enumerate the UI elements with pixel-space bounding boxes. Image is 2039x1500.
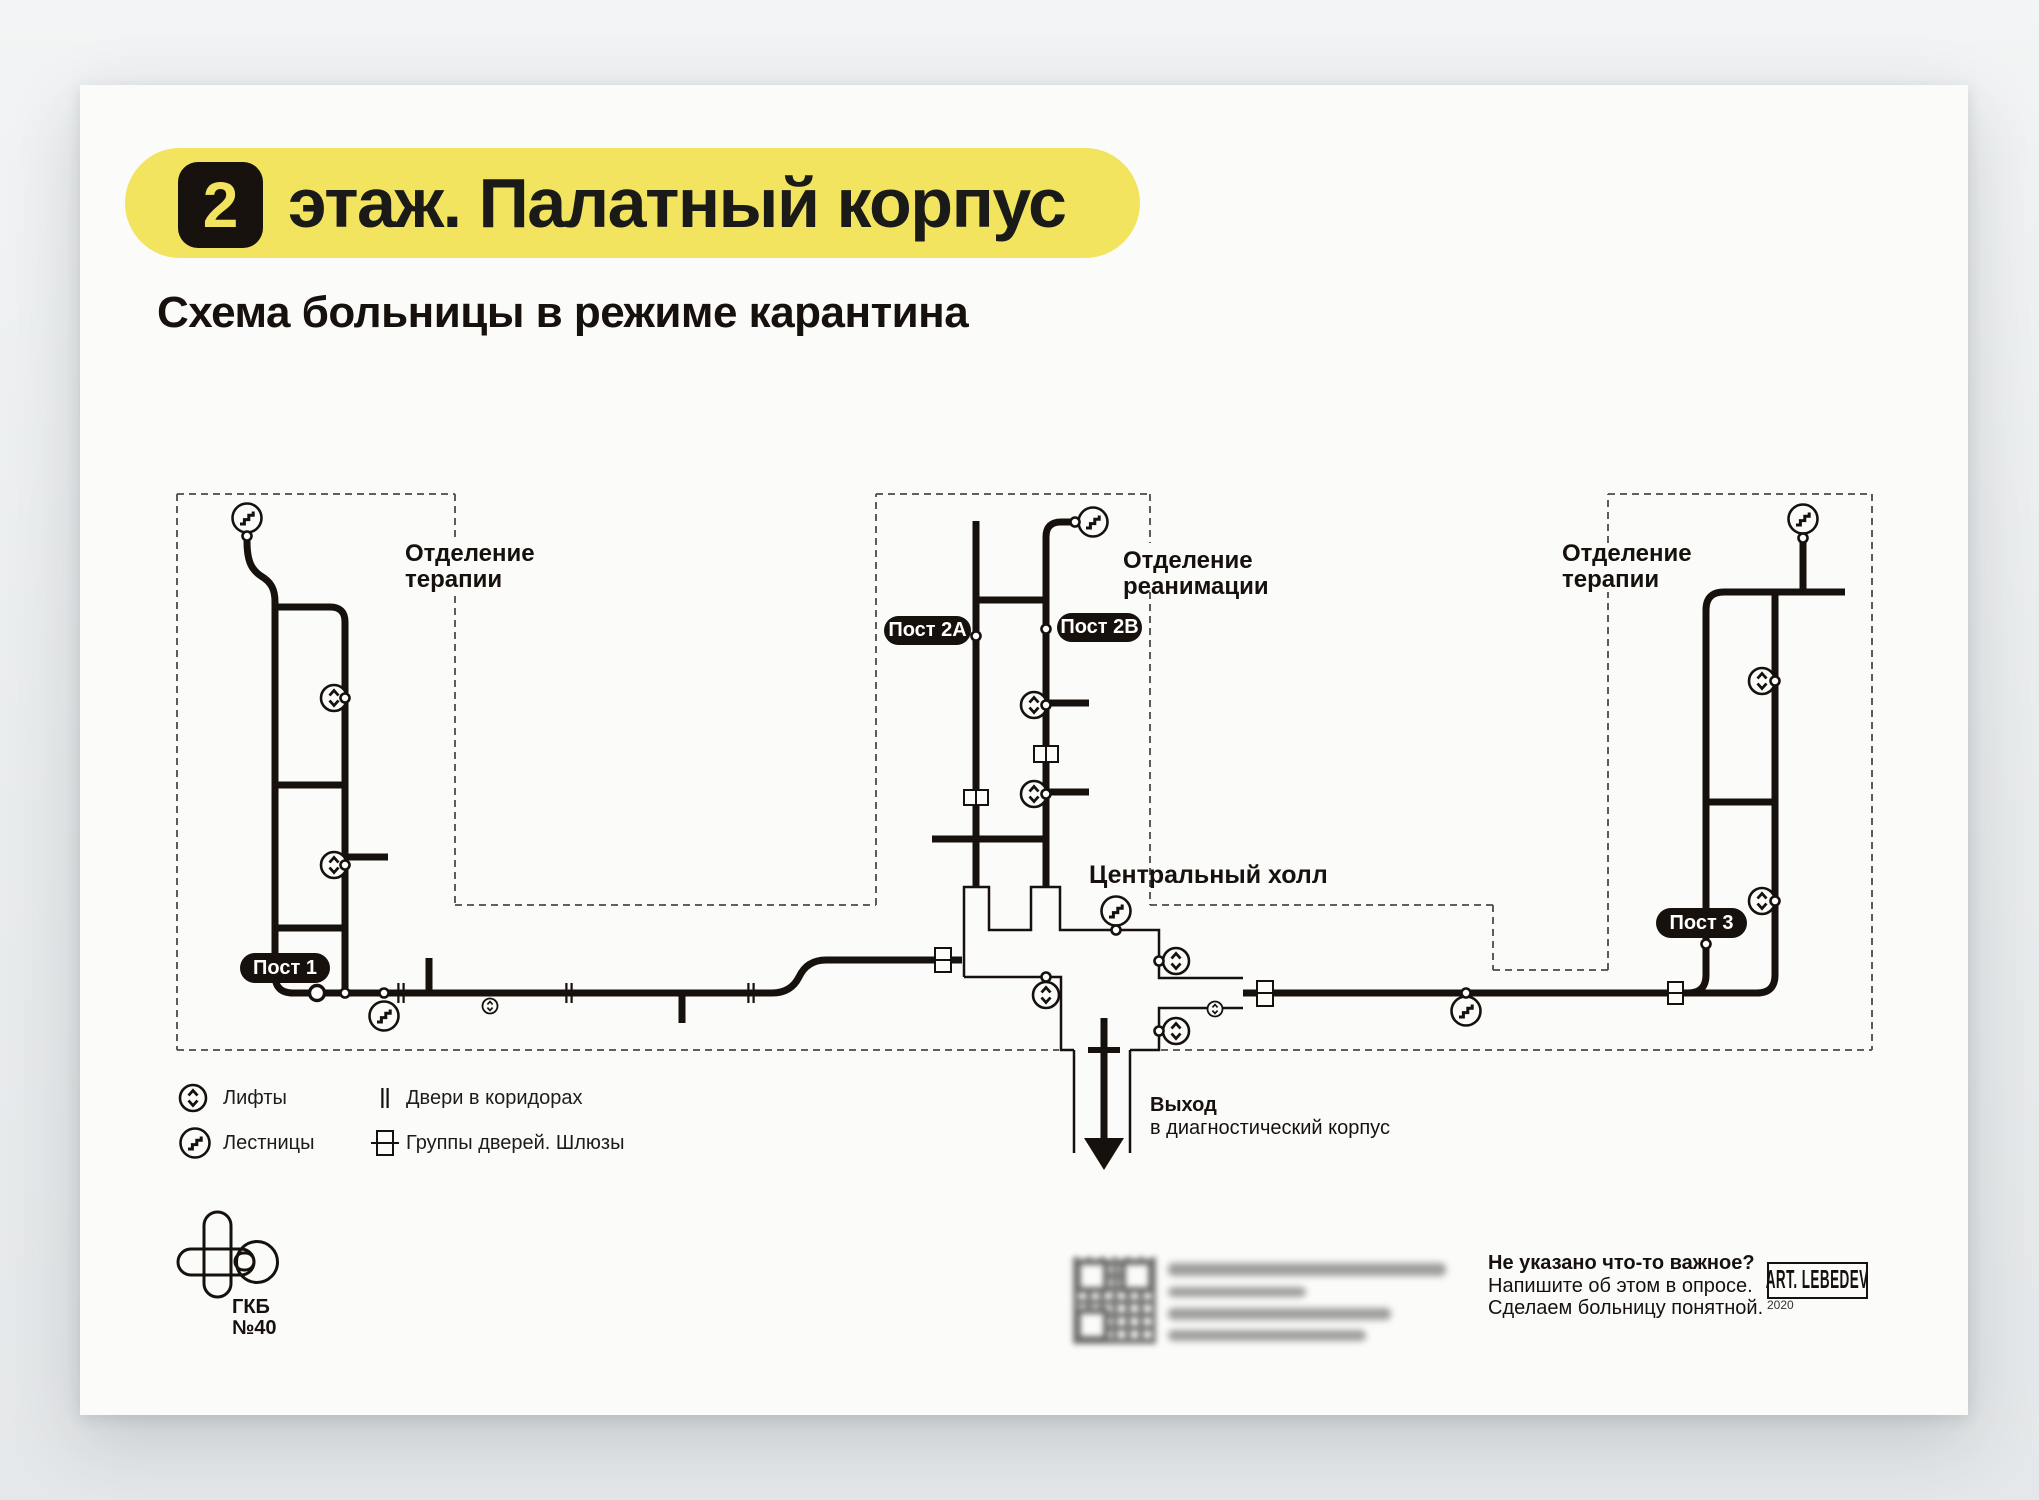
elevator-icon: [1033, 982, 1059, 1008]
qr-eye: [1075, 1308, 1109, 1342]
airlock-icon: [935, 948, 951, 972]
stairs-icon: [181, 1129, 210, 1158]
stairs-icon: [370, 1002, 399, 1031]
blurred-text-line: [1168, 1287, 1306, 1297]
exit-line1: Выход: [1150, 1094, 1390, 1117]
post-2a-badge: Пост 2А: [884, 616, 971, 645]
post-1-badge: Пост 1: [240, 953, 330, 983]
gkb-40-logo: [178, 1212, 278, 1297]
blurred-text-line: [1168, 1308, 1391, 1320]
dept-line: реанимации: [1123, 573, 1269, 600]
note-line1: Не указано что-то важное?: [1488, 1252, 1763, 1275]
blurred-text-line: [1168, 1263, 1446, 1276]
blurred-text-line: [1168, 1330, 1366, 1341]
feedback-note: Не указано что-то важное? Напишите об эт…: [1488, 1252, 1763, 1320]
stairs-icon: [233, 504, 262, 533]
hospital-number: №40: [232, 1318, 277, 1339]
note-line3: Сделаем больницу понятной.: [1488, 1297, 1763, 1320]
airlock-icon: [1034, 746, 1058, 762]
legend-label-stairs: Лестницы: [223, 1132, 314, 1155]
corridor-doors-icon: [382, 1088, 387, 1108]
art-lebedev-year: 2020: [1767, 1298, 1794, 1312]
dept-line: терапии: [1562, 566, 1659, 593]
art-lebedev-logo: ART. LEBEDEV: [1767, 1262, 1868, 1299]
elevator-icon-small: [483, 999, 498, 1014]
corridor-post1-main: [247, 541, 962, 993]
elevator-icon: [180, 1085, 206, 1111]
post-2b-badge: Пост 2В: [1057, 613, 1142, 642]
poster-screenshot: 2 этаж. Палатный корпус Схема больницы в…: [0, 0, 2039, 1500]
dept-line: Отделение: [1562, 540, 1692, 567]
page-title: этаж. Палатный корпус: [288, 148, 1065, 258]
hospital-abbr: ГКБ: [232, 1297, 270, 1318]
exit-arrow-icon: [1084, 1018, 1124, 1170]
dept-label-therapy-right: Отделениетерапии: [1562, 541, 1692, 593]
dept-line: Отделение: [1123, 547, 1253, 574]
airlock-icon: [371, 1131, 399, 1155]
corridor-lines: [247, 521, 1845, 1023]
legend-label-elevators: Лифты: [223, 1087, 287, 1110]
node-dots: [243, 518, 1808, 1036]
dept-line: терапии: [405, 566, 502, 593]
art-lebedev-logo-text: ART. LEBEDEV: [1766, 1266, 1869, 1295]
elevator-icon: [1163, 1018, 1189, 1044]
stairs-icon: [1102, 897, 1131, 926]
airlock-icon: [1257, 981, 1273, 1006]
post1-station-dot: [310, 986, 325, 1001]
legend-label-corridor-doors: Двери в коридорах: [406, 1087, 583, 1110]
airlock-icon: [1668, 982, 1683, 1004]
dept-label-therapy-left: Отделениетерапии: [405, 541, 535, 593]
stairs-icon: [1789, 505, 1818, 534]
note-line2: Напишите об этом в опросе.: [1488, 1275, 1763, 1298]
qr-eye: [1075, 1259, 1109, 1293]
airlock-icon: [964, 790, 988, 805]
exit-line2: в диагностический корпус: [1150, 1117, 1390, 1140]
dept-line: Отделение: [405, 540, 535, 567]
corridor-post1-branch: [275, 607, 345, 993]
elevator-icon: [1163, 948, 1189, 974]
stairs-icon: [1079, 508, 1108, 537]
elevator-icon-small: [1208, 1002, 1223, 1017]
post-3-badge: Пост 3: [1656, 908, 1747, 938]
floor-number-badge: 2: [178, 162, 263, 248]
qr-code-blurred: [1073, 1257, 1156, 1344]
central-hall-label: Центральный холл: [1089, 861, 1328, 890]
stairs-icon: [1452, 997, 1481, 1026]
exit-label: Выход в диагностический корпус: [1150, 1094, 1390, 1140]
legend-label-airlocks: Группы дверей. Шлюзы: [406, 1132, 624, 1155]
dept-label-reanimation: Отделениереанимации: [1123, 548, 1269, 600]
qr-eye: [1120, 1259, 1154, 1293]
page-subtitle: Схема больницы в режиме карантина: [157, 288, 968, 338]
